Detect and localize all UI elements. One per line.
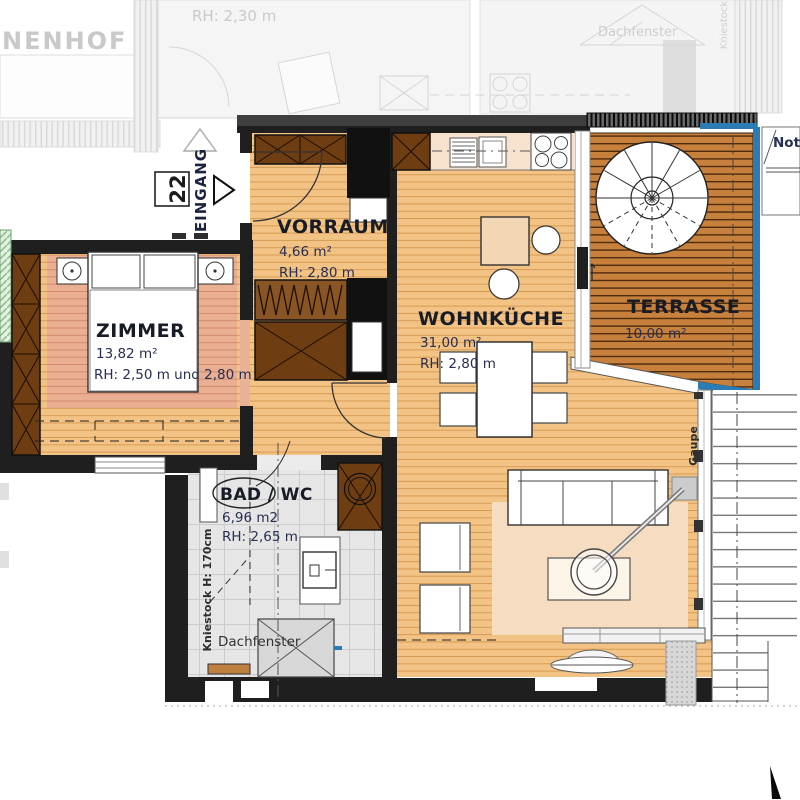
label-vorraum: VORRAUM bbox=[277, 216, 389, 238]
faded-window-bar bbox=[134, 0, 158, 152]
wall-zimmer-right-a bbox=[240, 254, 253, 320]
faded-chimney bbox=[663, 40, 696, 114]
armchair-2 bbox=[420, 585, 470, 633]
label-wohnkueche-area: 31,00 m² bbox=[420, 335, 482, 351]
wall-notch-1 bbox=[205, 681, 233, 702]
entrance-annotation: 22 EINGANG bbox=[155, 129, 234, 232]
not-label: Not bbox=[773, 135, 800, 151]
window-joint-1 bbox=[694, 392, 703, 399]
wall-notch-2 bbox=[241, 681, 269, 698]
left-tick-1 bbox=[0, 483, 9, 500]
wall-gap-right bbox=[535, 678, 597, 691]
stool-1 bbox=[532, 226, 560, 254]
faded-roof-strip bbox=[735, 0, 782, 113]
label-zimmer: ZIMMER bbox=[96, 320, 185, 342]
wall-zimmer-right-b bbox=[240, 406, 253, 455]
armchair-1 bbox=[420, 523, 470, 572]
chair-2 bbox=[440, 393, 476, 426]
chair-4 bbox=[532, 393, 567, 423]
faded-label-innenhof: NENHOF bbox=[2, 27, 127, 55]
unit-number: 22 bbox=[166, 174, 190, 203]
label-vorraum-rh: RH: 2,80 m bbox=[279, 265, 355, 281]
label-gaupe: Gaupe bbox=[687, 426, 700, 466]
insulation-hatch bbox=[0, 230, 11, 342]
shower-drain-mark bbox=[334, 646, 342, 650]
chair-3 bbox=[532, 352, 567, 383]
water-line-right bbox=[753, 127, 760, 390]
ladder-mask bbox=[768, 641, 800, 703]
label-dachfenster-bad: Dachfenster bbox=[218, 634, 301, 650]
wall-top-edge bbox=[237, 126, 590, 133]
shaft-2-duct bbox=[352, 322, 382, 372]
window-joint-4 bbox=[694, 598, 703, 610]
wall-bottom-mid bbox=[347, 677, 397, 702]
pillow-right bbox=[144, 255, 195, 288]
direction-triangle-icon bbox=[184, 129, 216, 151]
zimmer-window bbox=[95, 457, 165, 473]
label-terrasse: TERRASSE bbox=[627, 296, 740, 318]
label-wohnkueche: WOHNKÜCHE bbox=[418, 306, 564, 330]
wall-entry-upper bbox=[240, 131, 252, 153]
label-kniestock-bad: Kniestock H: 170cm bbox=[201, 529, 214, 652]
stool-2 bbox=[489, 269, 519, 299]
floor-lamp-shade bbox=[571, 549, 617, 595]
spiral-staircase bbox=[596, 142, 708, 254]
north-needle-icon bbox=[770, 766, 781, 799]
wall-bad-right bbox=[382, 437, 397, 702]
wall-bad-left bbox=[165, 475, 188, 702]
label-vorraum-area: 4,66 m² bbox=[279, 244, 332, 260]
label-bad: BAD / WC bbox=[220, 485, 313, 505]
bad-door-opening bbox=[257, 455, 321, 470]
label-bad-rh: RH: 2,65 m bbox=[222, 529, 298, 545]
water-line-top bbox=[700, 123, 757, 129]
label-zimmer-rh: RH: 2,50 m und 2,80 m bbox=[94, 367, 252, 383]
bath-cabinet bbox=[200, 468, 217, 522]
shaft-1 bbox=[347, 128, 390, 198]
faded-label-dachfenster: Dachfenster bbox=[598, 25, 678, 40]
left-tick-2 bbox=[0, 551, 9, 568]
chimney-column bbox=[666, 641, 696, 705]
faded-label-rh: RH: 2,30 m bbox=[192, 7, 276, 25]
label-bad-area: 6,96 m2 bbox=[222, 510, 278, 526]
eingang-label: EINGANG bbox=[192, 148, 210, 232]
kitchen-terrace-wall-stub bbox=[577, 247, 588, 289]
floor-plan-page: NENHOF RH: 2,30 m Dachfenster Kniestock bbox=[0, 0, 800, 800]
label-terrasse-area: 10,00 m² bbox=[625, 326, 687, 342]
faded-label-kniestock: Kniestock bbox=[719, 1, 730, 50]
faded-room-3 bbox=[0, 55, 135, 118]
label-wohnkueche-rh: RH: 2,80 m bbox=[420, 356, 496, 372]
floor-plan-drawing: NENHOF RH: 2,30 m Dachfenster Kniestock bbox=[0, 0, 800, 800]
entry-threshold-gap bbox=[186, 233, 194, 239]
window-joint-3 bbox=[694, 520, 703, 532]
bath-bench bbox=[208, 664, 250, 674]
entrance-arrow-icon bbox=[214, 176, 234, 204]
pillow-left bbox=[92, 255, 140, 288]
label-zimmer-area: 13,82 m² bbox=[96, 346, 158, 362]
kitchen-island bbox=[481, 217, 529, 265]
faded-room-2 bbox=[480, 0, 735, 114]
sofa bbox=[508, 470, 668, 525]
